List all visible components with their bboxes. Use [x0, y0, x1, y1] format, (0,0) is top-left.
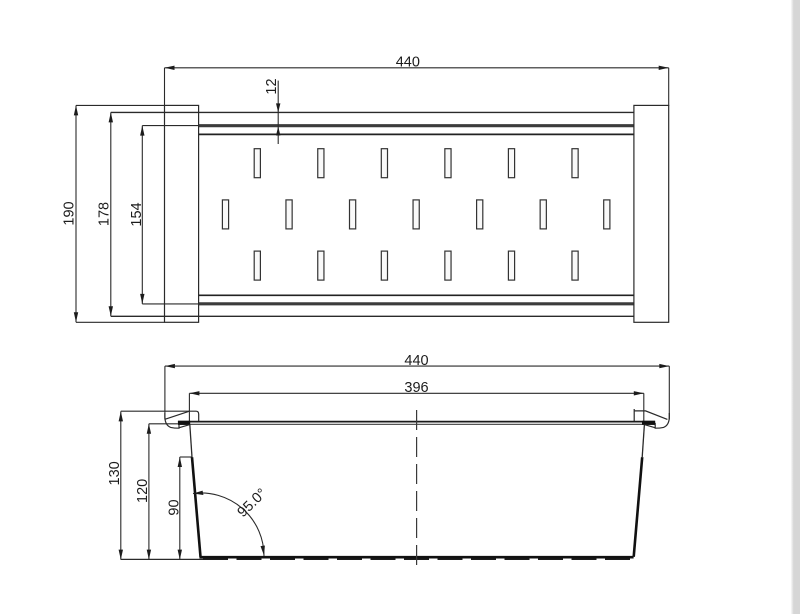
svg-text:440: 440: [396, 55, 420, 71]
svg-text:178: 178: [97, 202, 113, 226]
svg-text:130: 130: [107, 461, 123, 485]
svg-text:440: 440: [404, 353, 428, 369]
svg-text:90: 90: [166, 499, 182, 515]
svg-text:95.0°: 95.0°: [235, 486, 271, 521]
svg-text:120: 120: [135, 479, 151, 503]
svg-text:154: 154: [129, 202, 145, 226]
svg-text:396: 396: [404, 380, 428, 396]
svg-text:12: 12: [264, 78, 280, 94]
svg-text:190: 190: [62, 201, 78, 225]
